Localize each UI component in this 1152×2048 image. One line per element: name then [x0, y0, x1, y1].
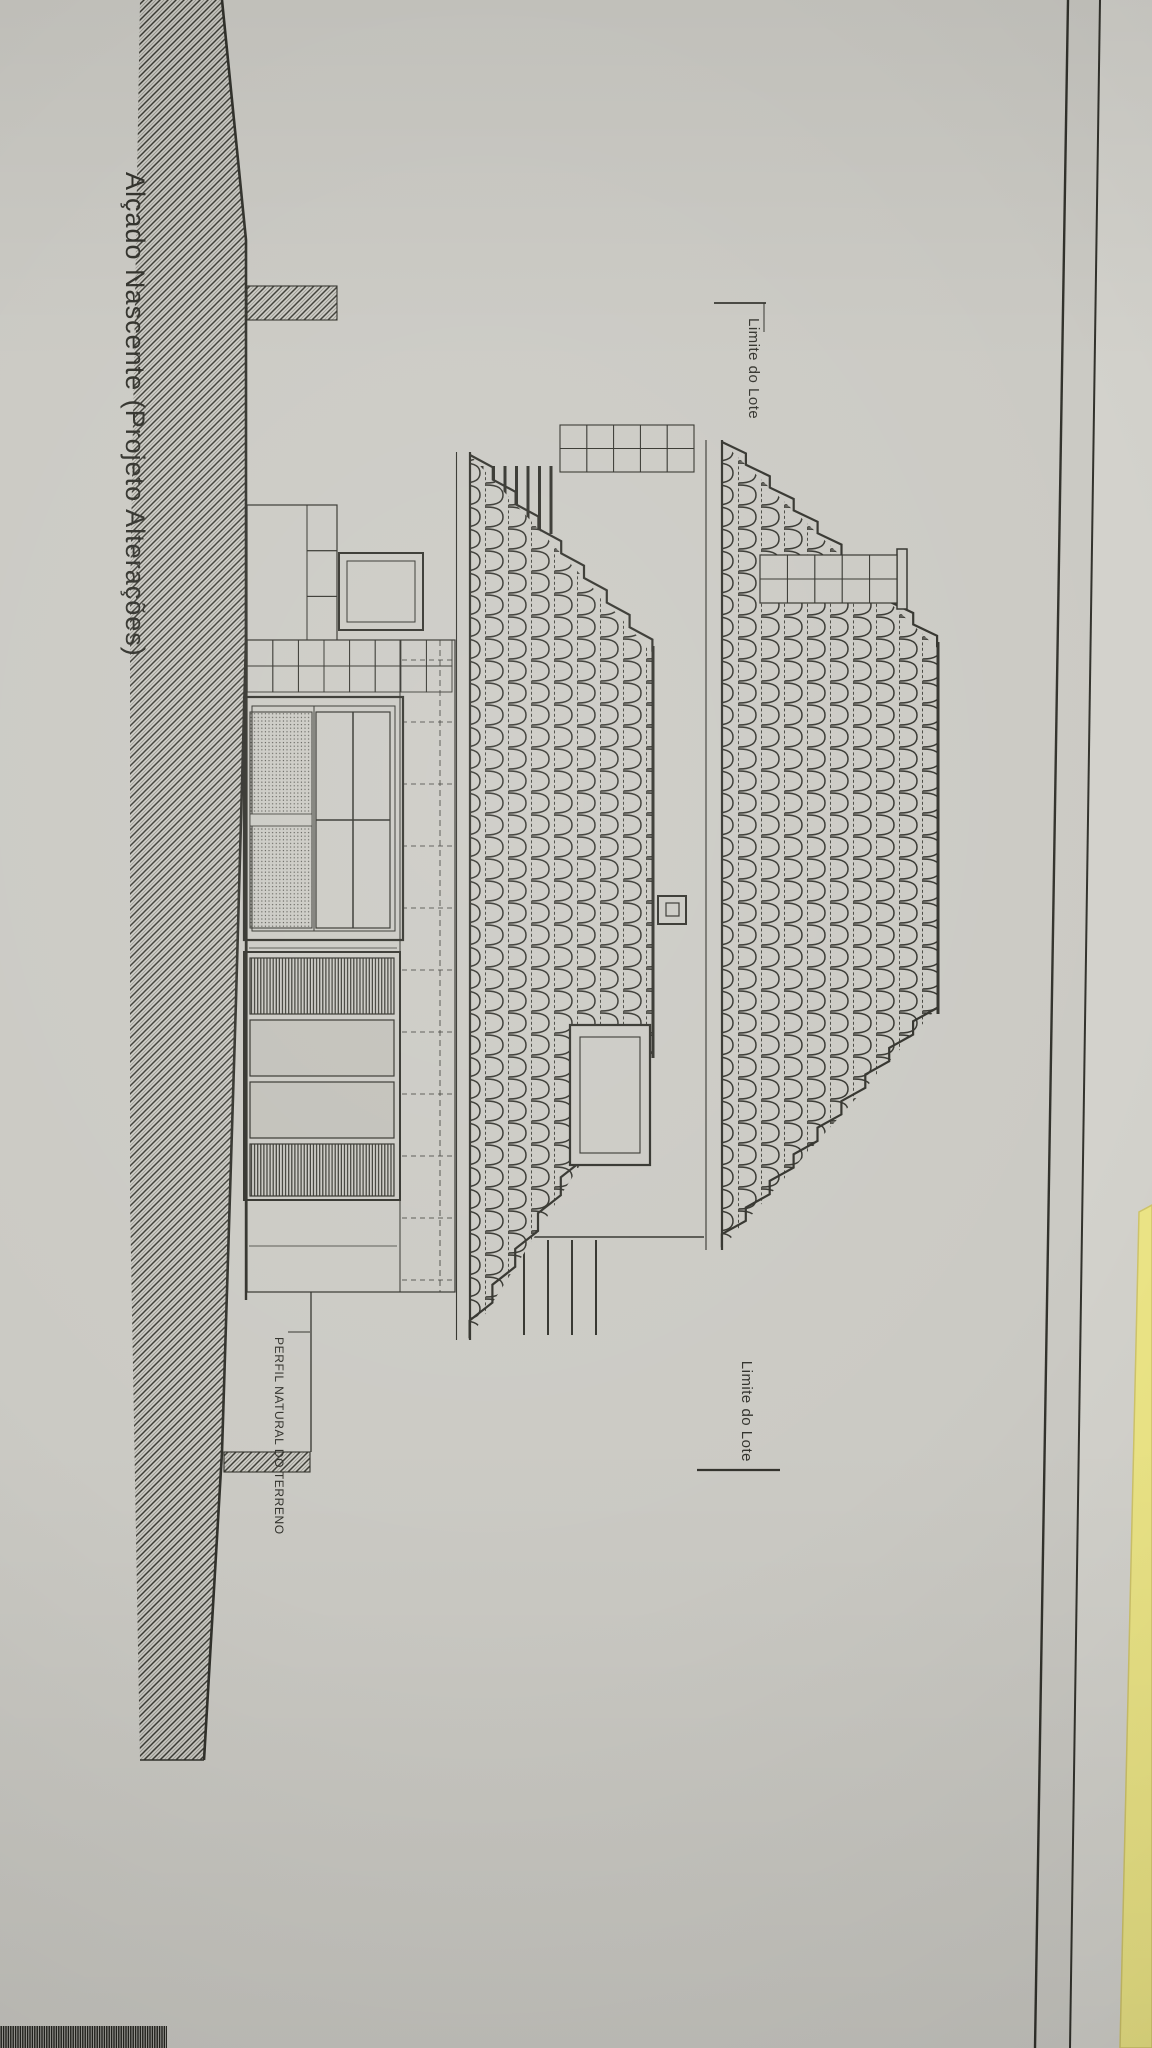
roof-skylight-box: [570, 1025, 650, 1165]
stone-clad-chimney: [760, 549, 907, 609]
house-facade: [244, 595, 455, 1300]
adjacent-drawing-dark-strip: [0, 2026, 167, 2048]
natural-terrain-label: PERFIL NATURAL DO TERRENO: [272, 1337, 286, 1535]
lot-boundary-label-left: Limite do Lote: [745, 318, 762, 419]
lot-boundary-label-right: Limite do Lote: [738, 1361, 755, 1462]
drawing-title: Alçado Nascente (Projeto Alterações): [120, 172, 150, 657]
photo-of-architectural-elevation-sheet: PERFIL NATURAL DO TERRENO Limite do Lote…: [0, 0, 1152, 2048]
east-elevation-drawing: PERFIL NATURAL DO TERRENO Limite do Lote…: [0, 0, 1152, 2048]
ridge-flue-square: [658, 896, 686, 924]
drawing-sheet-rotated-90deg: PERFIL NATURAL DO TERRENO Limite do Lote…: [0, 0, 1152, 2048]
